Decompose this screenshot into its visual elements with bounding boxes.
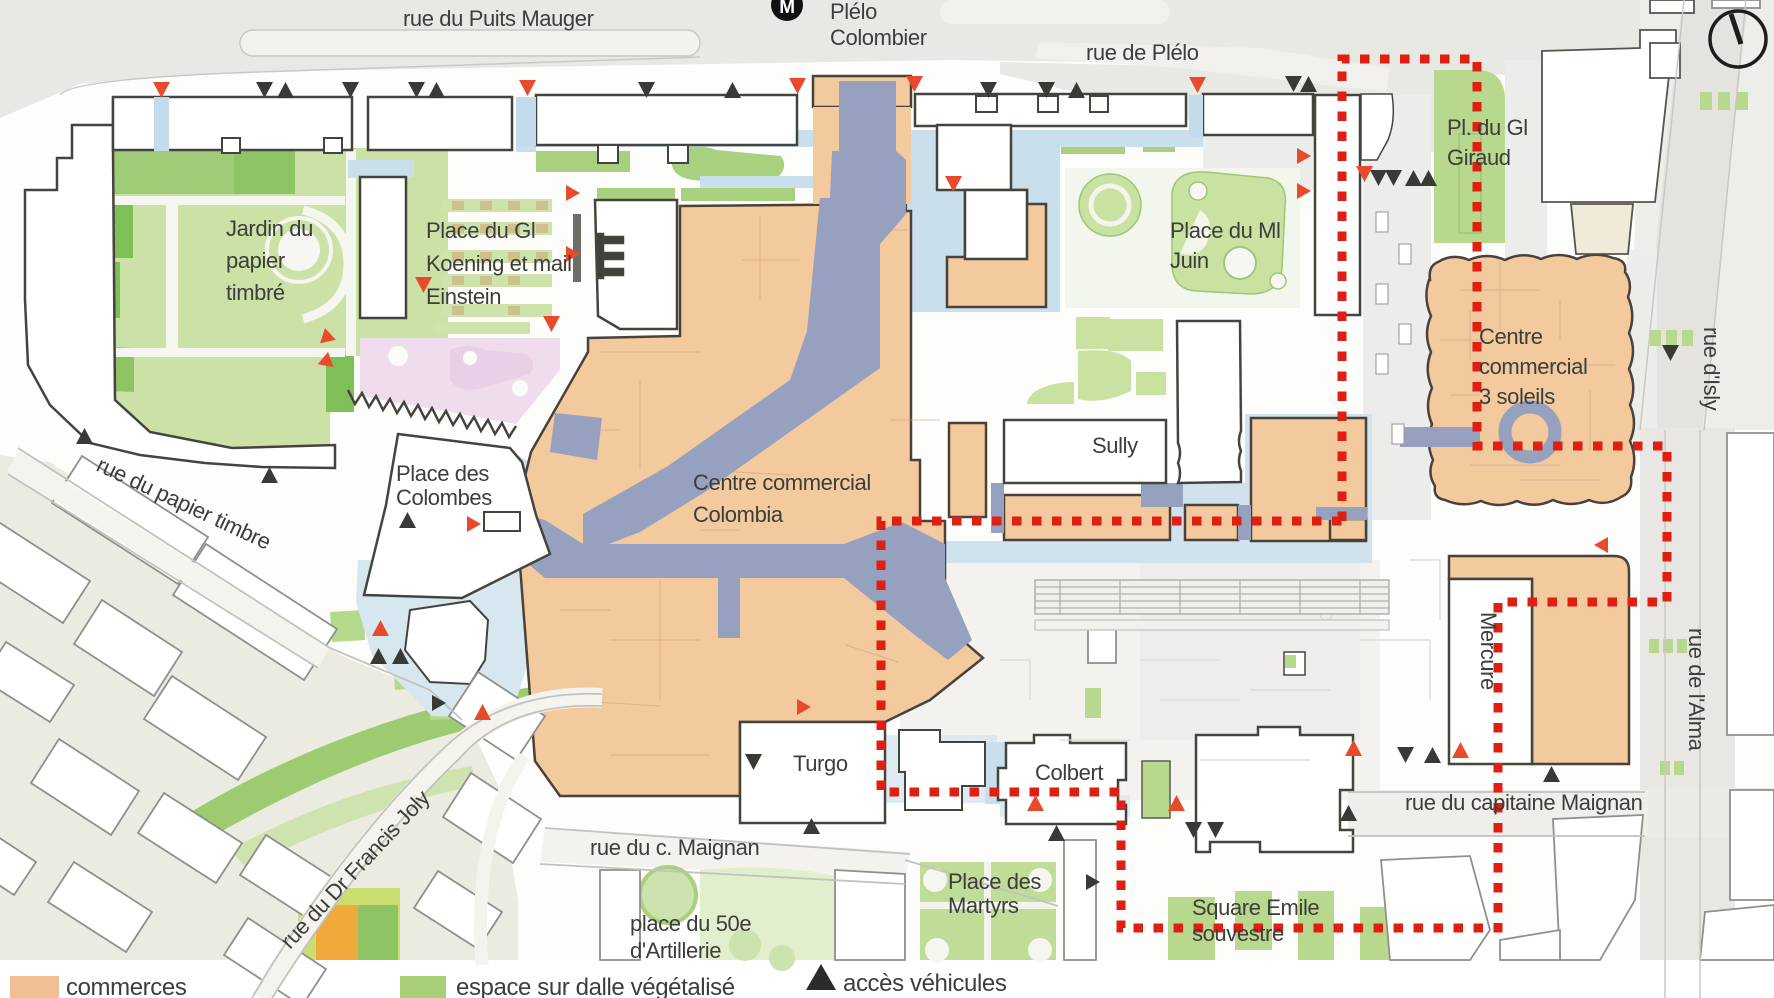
svg-text:rue de l'Alma: rue de l'Alma <box>1684 628 1709 752</box>
svg-text:d'Artillerie: d'Artillerie <box>630 938 721 963</box>
svg-text:Juin: Juin <box>1170 248 1209 273</box>
svg-text:rue de Plélo: rue de Plélo <box>1086 40 1199 65</box>
svg-text:M: M <box>779 0 794 18</box>
svg-text:rue d'Isly: rue d'Isly <box>1699 327 1724 411</box>
svg-text:Colombes: Colombes <box>396 485 492 510</box>
svg-text:rue du c. Maignan: rue du c. Maignan <box>590 835 759 860</box>
svg-text:commerces: commerces <box>66 974 187 998</box>
svg-text:Centre commercial: Centre commercial <box>693 470 871 495</box>
svg-text:place du 50e: place du 50e <box>630 911 751 936</box>
svg-text:commercial: commercial <box>1479 354 1587 379</box>
svg-text:papier: papier <box>226 248 285 273</box>
svg-text:Pl. du Gl: Pl. du Gl <box>1447 115 1528 140</box>
svg-text:Einstein: Einstein <box>426 284 501 309</box>
svg-text:Place du Gl: Place du Gl <box>426 218 535 243</box>
svg-text:Mercure: Mercure <box>1476 612 1501 690</box>
svg-text:espace sur dalle végétalisé: espace sur dalle végétalisé <box>456 974 735 998</box>
svg-text:Square Emile: Square Emile <box>1192 895 1319 920</box>
svg-text:Turgo: Turgo <box>793 751 848 776</box>
svg-text:Place des: Place des <box>948 869 1041 894</box>
svg-text:Giraud: Giraud <box>1447 145 1511 170</box>
svg-text:Colombier: Colombier <box>830 25 927 50</box>
svg-text:Sully: Sully <box>1092 433 1138 458</box>
svg-text:3 soleils: 3 soleils <box>1479 384 1555 409</box>
svg-text:Koening et mail: Koening et mail <box>426 251 572 276</box>
svg-text:Colombia: Colombia <box>693 502 784 527</box>
svg-text:rue du capitaine Maignan: rue du capitaine Maignan <box>1405 790 1642 815</box>
svg-text:Jardin du: Jardin du <box>226 216 313 241</box>
svg-text:Place du Ml: Place du Ml <box>1170 218 1281 243</box>
svg-text:Martyrs: Martyrs <box>948 893 1019 918</box>
svg-text:Place des: Place des <box>396 461 489 486</box>
svg-text:accès véhicules: accès véhicules <box>843 970 1007 997</box>
svg-text:Plélo: Plélo <box>830 0 877 24</box>
svg-text:souvestre: souvestre <box>1192 921 1284 946</box>
svg-text:Centre: Centre <box>1479 324 1543 349</box>
svg-text:Colbert: Colbert <box>1035 760 1103 785</box>
svg-text:timbré: timbré <box>226 280 285 305</box>
svg-text:rue du Puits Mauger: rue du Puits Mauger <box>403 6 594 31</box>
